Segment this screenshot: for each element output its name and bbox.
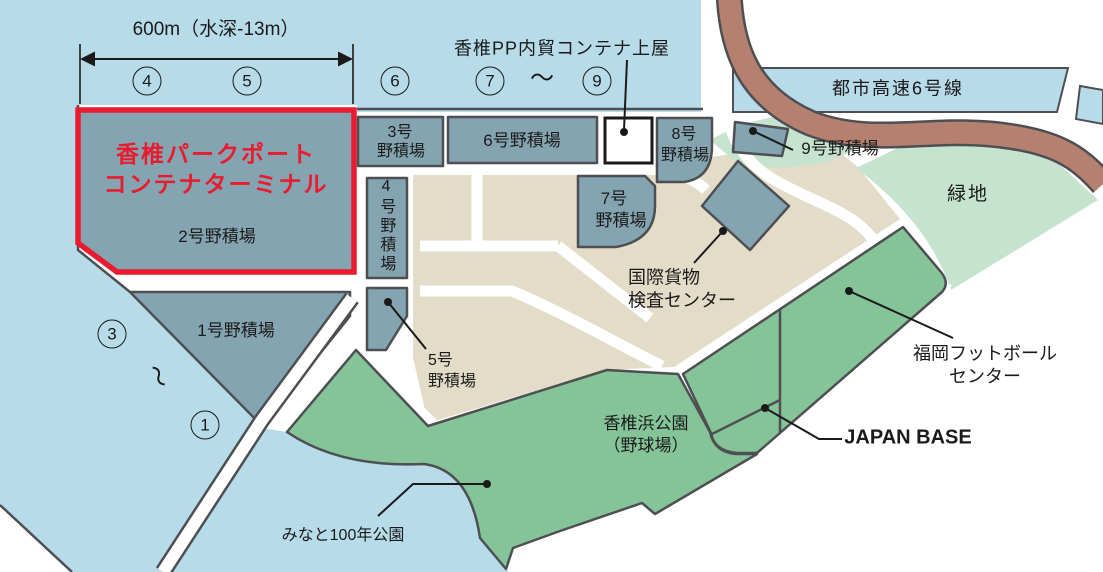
kashiihama-park-label-line2: （野球場） bbox=[604, 436, 689, 456]
leader-dot-minato-park bbox=[483, 480, 491, 488]
yard1-label: 1号野積場 bbox=[197, 321, 274, 341]
yard7-label-line2: 野積場 bbox=[596, 211, 647, 231]
berth-number-1: 1 bbox=[191, 411, 220, 440]
inspection-center-label-line2: 検査センター bbox=[628, 291, 736, 312]
yard7-label-line1: 7号 bbox=[601, 189, 627, 209]
shed-label: 香椎PP内貿コンテナ上屋 bbox=[454, 39, 670, 60]
yard3-label-line1: 3号 bbox=[388, 124, 413, 142]
yard4-label: 4号野積場 bbox=[376, 178, 394, 274]
leader-dot-football bbox=[845, 287, 853, 295]
leader-dot-shed bbox=[620, 128, 628, 136]
yard2-label: 2号野積場 bbox=[178, 227, 255, 247]
leader-dot-inspection bbox=[719, 227, 727, 235]
berth-range-tilde-top: ～ bbox=[530, 65, 554, 93]
expressway-band-fragment bbox=[1076, 86, 1103, 124]
terminal-title-line2: コンテナターミナル bbox=[104, 171, 329, 197]
yard5-label-line2: 野積場 bbox=[428, 373, 476, 391]
container-shed-box bbox=[605, 118, 652, 163]
inspection-center-label-line1: 国際貨物 bbox=[628, 268, 700, 289]
football-center-label-line1: 福岡フットボール bbox=[913, 344, 1057, 365]
yard9-label: 9号野積場 bbox=[801, 139, 878, 159]
berth-number-9: 9 bbox=[583, 67, 612, 96]
japan-base-label: JAPAN BASE bbox=[844, 427, 971, 450]
greenspace-label: 緑地 bbox=[947, 184, 989, 206]
minato-park-label: みなと100年公園 bbox=[282, 527, 405, 545]
berth-number-5: 5 bbox=[233, 67, 262, 96]
kashiihama-park-label-line1: 香椎浜公園 bbox=[604, 414, 689, 434]
expressway-label: 都市高速6号線 bbox=[832, 79, 964, 100]
leader-dot-yard9 bbox=[749, 127, 757, 135]
yard6-label: 6号野積場 bbox=[483, 131, 560, 151]
yard3-label-line2: 野積場 bbox=[377, 143, 425, 161]
terminal-title-line1: 香椎パークポート bbox=[116, 141, 316, 167]
football-center-label-line2: センター bbox=[949, 367, 1021, 388]
berth-number-3: 3 bbox=[98, 320, 127, 349]
yard8-label-line1: 8号 bbox=[672, 126, 697, 144]
yard9-parcel bbox=[733, 122, 788, 156]
berth-number-7: 7 bbox=[476, 67, 505, 96]
leader-dot-yard5 bbox=[384, 298, 392, 306]
berth-number-4: 4 bbox=[133, 67, 162, 96]
leader-dot-japan-base bbox=[761, 404, 769, 412]
yard8-label-line2: 野積場 bbox=[661, 147, 709, 165]
scale-label: 600m（水深-13m） bbox=[133, 19, 300, 41]
berth-number-6: 6 bbox=[381, 67, 410, 96]
port-facility-map: 600m（水深-13m） 4 5 6 7 ～ 9 3 ～ 1 香椎PP内貿コンテ… bbox=[0, 0, 1103, 572]
yard5-label-line1: 5号 bbox=[428, 352, 453, 370]
